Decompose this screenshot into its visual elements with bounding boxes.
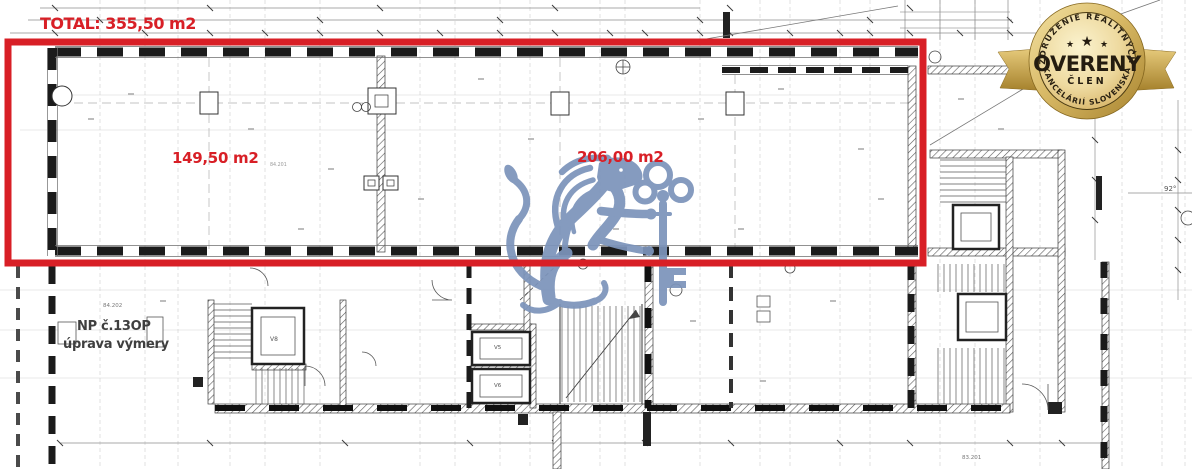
lift-label-v8: V8: [270, 336, 278, 343]
badge-subtitle: ČLEN: [1067, 75, 1106, 87]
badge-star-icon: ★: [1100, 40, 1108, 50]
highlight-rectangle: [8, 42, 923, 263]
elevator-shafts: V8 V5 V6: [252, 205, 1006, 403]
floor-plan-drawing: V8 V5 V6 84.202 84.201 83.201: [0, 0, 1192, 469]
floor-plan-canvas: V8 V5 V6 84.202 84.201 83.201: [0, 0, 1192, 469]
micro-annotations: [88, 78, 1004, 382]
grid-ref-bottom-right: 83.201: [962, 455, 981, 461]
stairwells: [214, 160, 1006, 404]
angle-label: 92°: [1164, 185, 1176, 193]
total-area-label: TOTAL: 355,50 m2: [40, 14, 196, 33]
lift-label-v5: V5: [494, 345, 502, 351]
lift-label-v6: V6: [494, 383, 502, 389]
badge-star-icon: ★: [1066, 40, 1074, 50]
unit-note-line2: úprava výmery: [63, 337, 170, 352]
unit-note-line1: NP č.13OP: [77, 319, 151, 334]
verified-member-badge: ZDRUŽENIE REALITNÝCH KANCELÁRIÍ SLOVENSK…: [998, 3, 1176, 119]
area-label-right: 206,00 m2: [577, 148, 663, 166]
grid-ref-left: 84.202: [103, 303, 122, 309]
badge-star-icon: ★: [1081, 34, 1094, 50]
area-label-left: 149,50 m2: [172, 149, 258, 167]
badge-title: OVERENÝ: [1033, 51, 1142, 76]
grid-ref-area: 84.201: [270, 162, 287, 168]
